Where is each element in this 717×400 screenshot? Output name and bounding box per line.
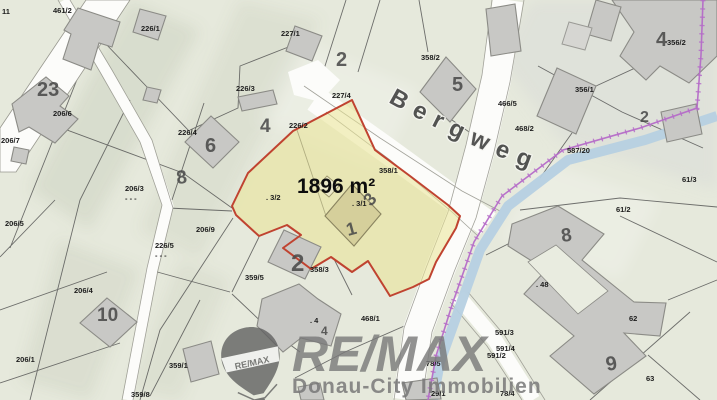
parcel-label: 11 bbox=[2, 7, 10, 16]
parcel-label: 356/2 bbox=[667, 38, 686, 47]
parcel-label: 226/2 bbox=[289, 121, 308, 130]
house-number: 8 bbox=[175, 167, 188, 189]
parcel-label: 61/2 bbox=[616, 205, 631, 214]
parcel-label: 358/2 bbox=[421, 53, 440, 62]
parcel-label: 356/1 bbox=[575, 85, 594, 94]
parcel-label: 358/3 bbox=[310, 265, 329, 274]
parcel-label: 61/3 bbox=[682, 175, 697, 184]
parcel-label: 206/4 bbox=[74, 286, 94, 295]
parcel-label: 591/3 bbox=[495, 328, 514, 337]
house-number: 23 bbox=[37, 79, 59, 101]
house-number: 4 bbox=[656, 29, 668, 51]
building bbox=[143, 87, 161, 103]
house-number: 2 bbox=[640, 109, 649, 126]
house-number: 2 bbox=[336, 49, 347, 71]
building bbox=[11, 147, 29, 164]
parcel-label: 359/8 bbox=[131, 390, 150, 399]
building bbox=[486, 4, 521, 56]
parcel-label: 358/1 bbox=[379, 166, 398, 175]
parcel-label: 206/1 bbox=[16, 355, 35, 364]
parcel-label: 359/5 bbox=[245, 273, 264, 282]
house-number: 2 bbox=[291, 250, 304, 277]
parcel-label: 206/3 bbox=[125, 184, 144, 193]
parcel-label: 591/2 bbox=[487, 351, 506, 360]
parcel-label: 206/5 bbox=[5, 219, 24, 228]
parcel-label: . 3/2 bbox=[266, 193, 281, 202]
parcel-label: . 4 bbox=[310, 316, 319, 325]
parcel-label: - - - bbox=[155, 251, 167, 260]
house-number: 6 bbox=[205, 135, 216, 157]
parcel-label: 468/2 bbox=[515, 124, 534, 133]
parcel-label: 226/1 bbox=[141, 24, 160, 33]
cadastral-map-image: 11461/2226/1227/1358/2356/2226/3466/5468… bbox=[0, 0, 717, 400]
parcel-label: 468/1 bbox=[361, 314, 380, 323]
parcel-label: 359/1 bbox=[169, 361, 188, 370]
cadastral-map: 11461/2226/1227/1358/2356/2226/3466/5468… bbox=[0, 0, 717, 400]
parcel-label: 226/5 bbox=[155, 241, 174, 250]
parcel-label: 226/4 bbox=[178, 128, 198, 137]
house-number: 4 bbox=[260, 116, 271, 137]
watermark-brand: RE/MAX bbox=[292, 326, 489, 382]
parcel-label: 587/20 bbox=[567, 146, 590, 155]
parcel-label: . 48 bbox=[536, 280, 549, 289]
parcel-label: 206/9 bbox=[196, 225, 215, 234]
parcel-label: 62 bbox=[629, 314, 637, 323]
parcel-label: 461/2 bbox=[53, 6, 72, 15]
parcel-label: 63 bbox=[646, 374, 654, 383]
parcel-label: 206/7 bbox=[1, 136, 20, 145]
parcel-label: 206/6 bbox=[53, 109, 72, 118]
parcel-label: 466/5 bbox=[498, 99, 517, 108]
parcel-label: 226/3 bbox=[236, 84, 255, 93]
house-number: 5 bbox=[452, 74, 463, 96]
parcel-label: - - - bbox=[125, 194, 137, 203]
house-number: 10 bbox=[97, 305, 118, 326]
parcel-label: 227/4 bbox=[332, 91, 352, 100]
parcel-label: 227/1 bbox=[281, 29, 300, 38]
parcel-area-label: 1896 m² bbox=[297, 175, 375, 198]
watermark-subtitle: Donau-City Immobilien bbox=[292, 375, 542, 398]
